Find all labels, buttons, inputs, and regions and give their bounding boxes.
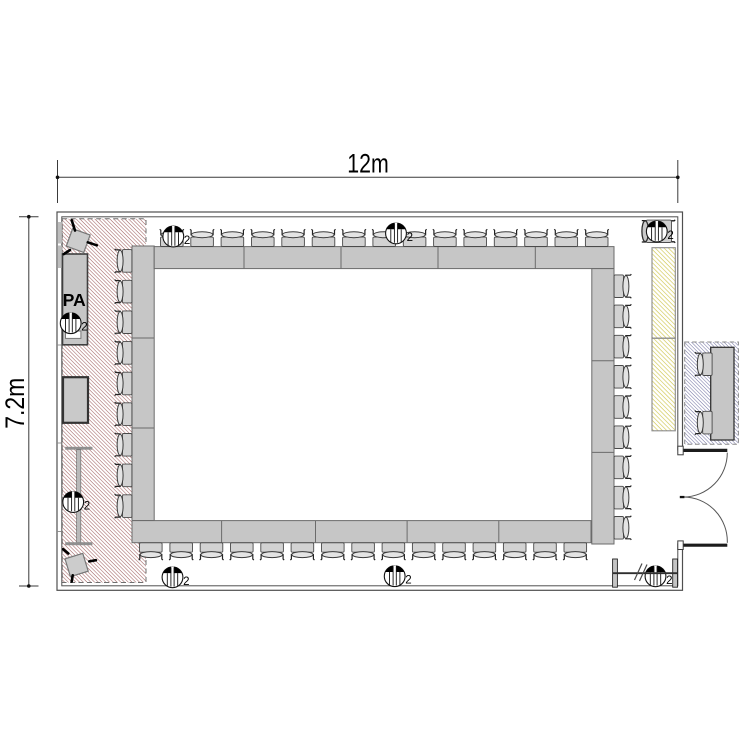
svg-text:2: 2 [81,322,87,334]
svg-text:2: 2 [184,235,190,247]
svg-text:12m: 12m [347,149,389,179]
svg-text:7.2m: 7.2m [0,378,30,429]
svg-text:2: 2 [183,576,189,588]
svg-text:2: 2 [666,575,672,587]
svg-text:2: 2 [407,232,413,244]
svg-text:2: 2 [405,575,411,587]
svg-text:PA: PA [63,290,87,310]
svg-text:2: 2 [84,501,90,513]
svg-text:2: 2 [667,230,673,242]
